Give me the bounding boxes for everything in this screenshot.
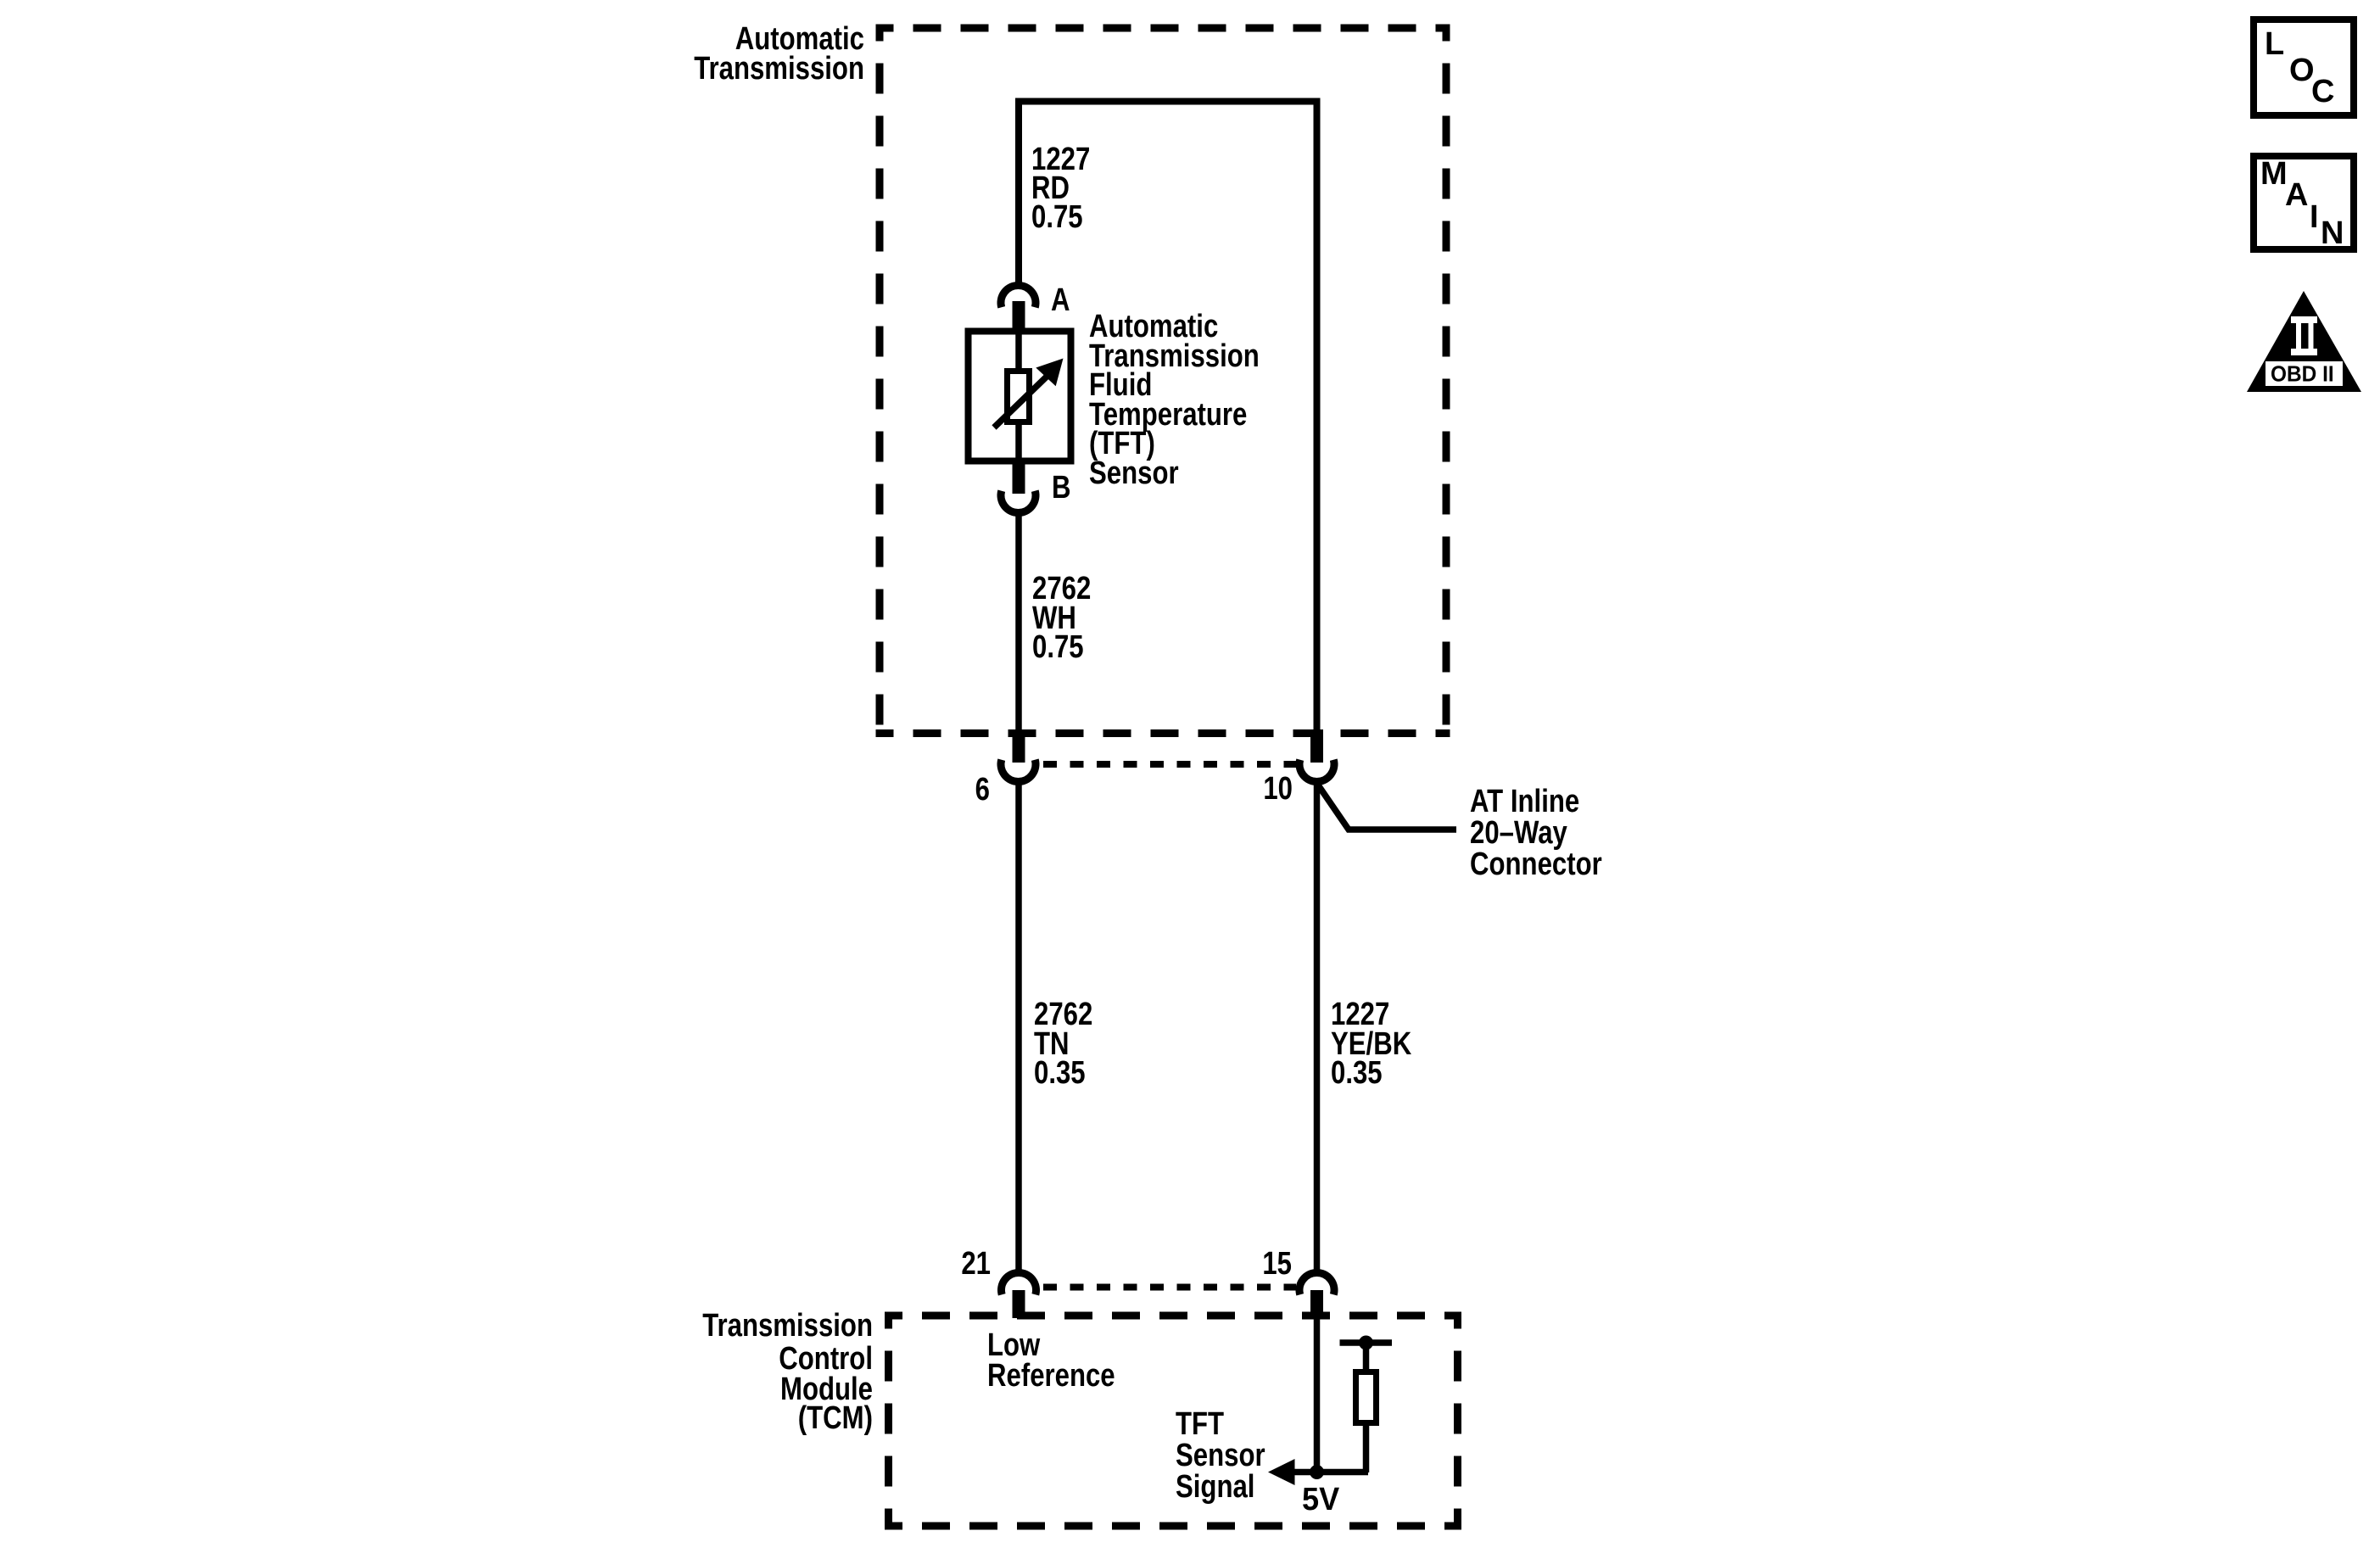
svg-text:B: B [1052,470,1071,506]
svg-text:TFT: TFT [1176,1406,1224,1442]
svg-text:6: 6 [975,772,990,807]
svg-text:AT Inline: AT Inline [1470,784,1579,819]
svg-text:0.35: 0.35 [1331,1055,1383,1091]
svg-text:Reference: Reference [987,1358,1115,1394]
svg-text:10: 10 [1263,771,1293,807]
svg-text:Sensor: Sensor [1089,455,1179,491]
svg-text:OBD II: OBD II [2271,362,2334,387]
svg-text:C: C [2311,74,2334,109]
svg-text:15: 15 [1262,1246,1292,1282]
svg-text:A: A [1051,282,1070,318]
svg-text:Connector: Connector [1470,847,1602,882]
svg-text:20–Way: 20–Way [1470,815,1567,851]
svg-text:0.75: 0.75 [1032,629,1084,665]
svg-text:Transmission: Transmission [694,51,864,87]
svg-text:Signal: Signal [1176,1469,1254,1505]
svg-text:0.75: 0.75 [1031,199,1083,235]
svg-text:Transmission: Transmission [702,1308,873,1344]
svg-text:5V: 5V [1302,1480,1339,1517]
svg-text:N: N [2321,215,2344,251]
svg-text:Sensor: Sensor [1176,1438,1265,1473]
svg-text:(TCM): (TCM) [798,1400,873,1436]
svg-text:21: 21 [961,1246,991,1282]
svg-text:M: M [2260,156,2288,192]
svg-text:I: I [2310,199,2319,235]
svg-text:0.35: 0.35 [1034,1055,1086,1091]
svg-text:A: A [2285,177,2308,213]
svg-text:L: L [2265,26,2284,62]
